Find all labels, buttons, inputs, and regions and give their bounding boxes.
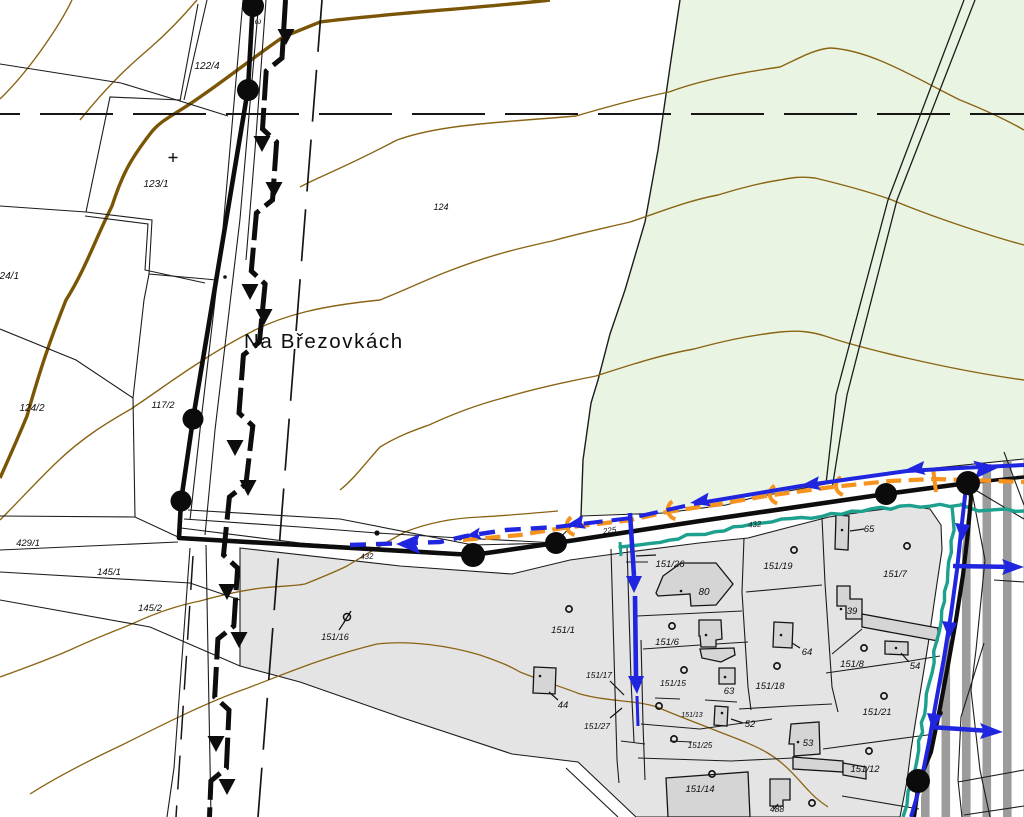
svg-text:151/17: 151/17 xyxy=(586,670,612,680)
svg-text:151/14: 151/14 xyxy=(685,784,714,795)
svg-text:151/18: 151/18 xyxy=(755,681,785,692)
svg-text:432: 432 xyxy=(747,519,762,530)
svg-text:151/1: 151/1 xyxy=(551,625,575,636)
svg-text:151/16: 151/16 xyxy=(321,632,349,642)
svg-text:117/2: 117/2 xyxy=(151,400,175,411)
svg-text:151/12: 151/12 xyxy=(850,764,880,775)
svg-text:151/27: 151/27 xyxy=(584,721,610,731)
svg-text:151/21: 151/21 xyxy=(862,707,891,718)
svg-text:80: 80 xyxy=(698,587,710,598)
svg-text:124/2: 124/2 xyxy=(19,403,44,414)
svg-text:151/6: 151/6 xyxy=(655,637,679,648)
svg-text:429/1: 429/1 xyxy=(16,538,40,549)
svg-text:488: 488 xyxy=(770,804,784,814)
svg-text:151/8: 151/8 xyxy=(840,659,864,670)
svg-text:432: 432 xyxy=(360,552,374,562)
svg-text:145/2: 145/2 xyxy=(138,603,162,614)
svg-text:Na Březovkách: Na Březovkách xyxy=(244,330,404,353)
svg-text:124: 124 xyxy=(433,202,448,212)
svg-text:64: 64 xyxy=(802,647,813,658)
svg-text:63: 63 xyxy=(724,686,735,697)
svg-text:53: 53 xyxy=(803,738,814,749)
svg-text:151/19: 151/19 xyxy=(763,561,793,572)
svg-text:65: 65 xyxy=(864,524,875,535)
svg-text:151/13: 151/13 xyxy=(681,712,703,719)
svg-text:122/4: 122/4 xyxy=(194,61,219,72)
svg-text:ω: ω xyxy=(255,17,261,26)
svg-text:151/26: 151/26 xyxy=(655,559,685,570)
svg-text:124/1: 124/1 xyxy=(0,271,19,282)
svg-text:151/15: 151/15 xyxy=(660,678,686,688)
svg-text:145/1: 145/1 xyxy=(97,567,121,578)
svg-text:39: 39 xyxy=(847,606,858,617)
svg-text:151/25: 151/25 xyxy=(688,741,713,750)
svg-text:54: 54 xyxy=(910,661,921,672)
svg-text:52: 52 xyxy=(745,719,756,730)
svg-text:123/1: 123/1 xyxy=(143,179,168,190)
svg-text:151/7: 151/7 xyxy=(883,569,907,580)
svg-text:44: 44 xyxy=(558,700,569,711)
